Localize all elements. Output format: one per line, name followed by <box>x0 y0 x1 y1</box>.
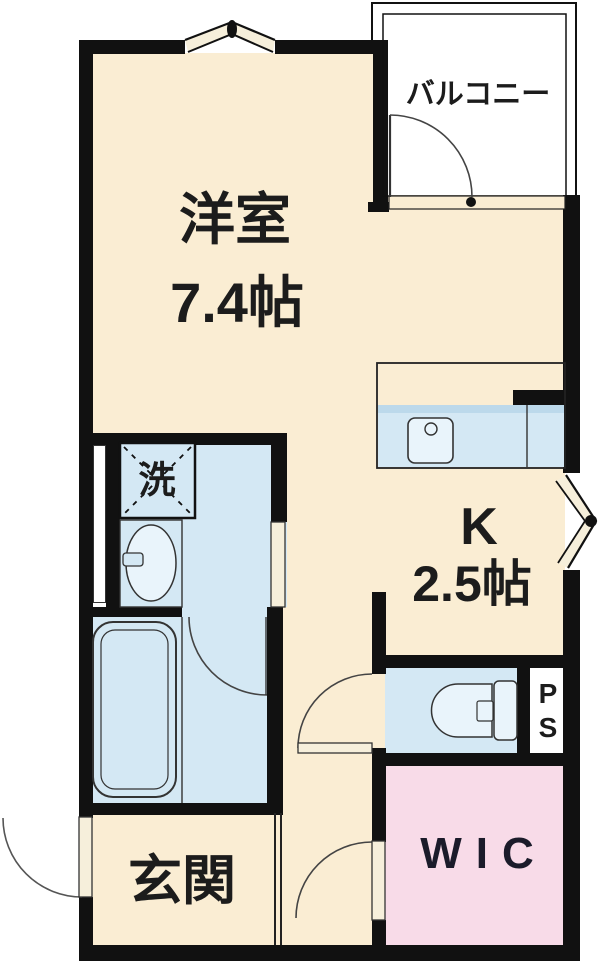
kitchen-counter <box>377 363 565 468</box>
washroom-door-leaf <box>271 522 285 607</box>
kitchen-name: K <box>460 501 498 553</box>
toilet-door-swing <box>298 674 372 753</box>
vanity-sink-icon <box>120 520 182 607</box>
entrance-door-swing <box>3 817 92 897</box>
floor-plan: バルコニー 洋室 7.4帖 K 2.5帖 洗 玄関 WIC P S <box>0 0 600 962</box>
fixtures-layer <box>0 0 600 962</box>
bay-window <box>185 20 275 52</box>
kitchen-side-window <box>556 475 597 568</box>
balcony-label: バルコニー <box>406 81 550 110</box>
kitchen-faucet <box>425 423 437 435</box>
balcony-door-swing <box>390 115 476 207</box>
balcony-threshold <box>389 196 565 209</box>
bathtub-icon <box>93 622 176 797</box>
pipe-space-label-p: P <box>539 680 558 708</box>
toilet-icon <box>432 681 517 740</box>
laundry-label: 洗 <box>139 462 176 499</box>
pipe-space-label-s: S <box>539 714 558 742</box>
bathroom-door-swing <box>189 617 267 695</box>
kitchen-size: 2.5帖 <box>412 559 532 609</box>
wic-door-swing <box>296 841 385 920</box>
living-room-name: 洋室 <box>179 192 291 248</box>
living-room-size: 7.4帖 <box>170 275 304 331</box>
wic-label: WIC <box>406 832 548 876</box>
entrance-label: 玄関 <box>128 854 236 908</box>
